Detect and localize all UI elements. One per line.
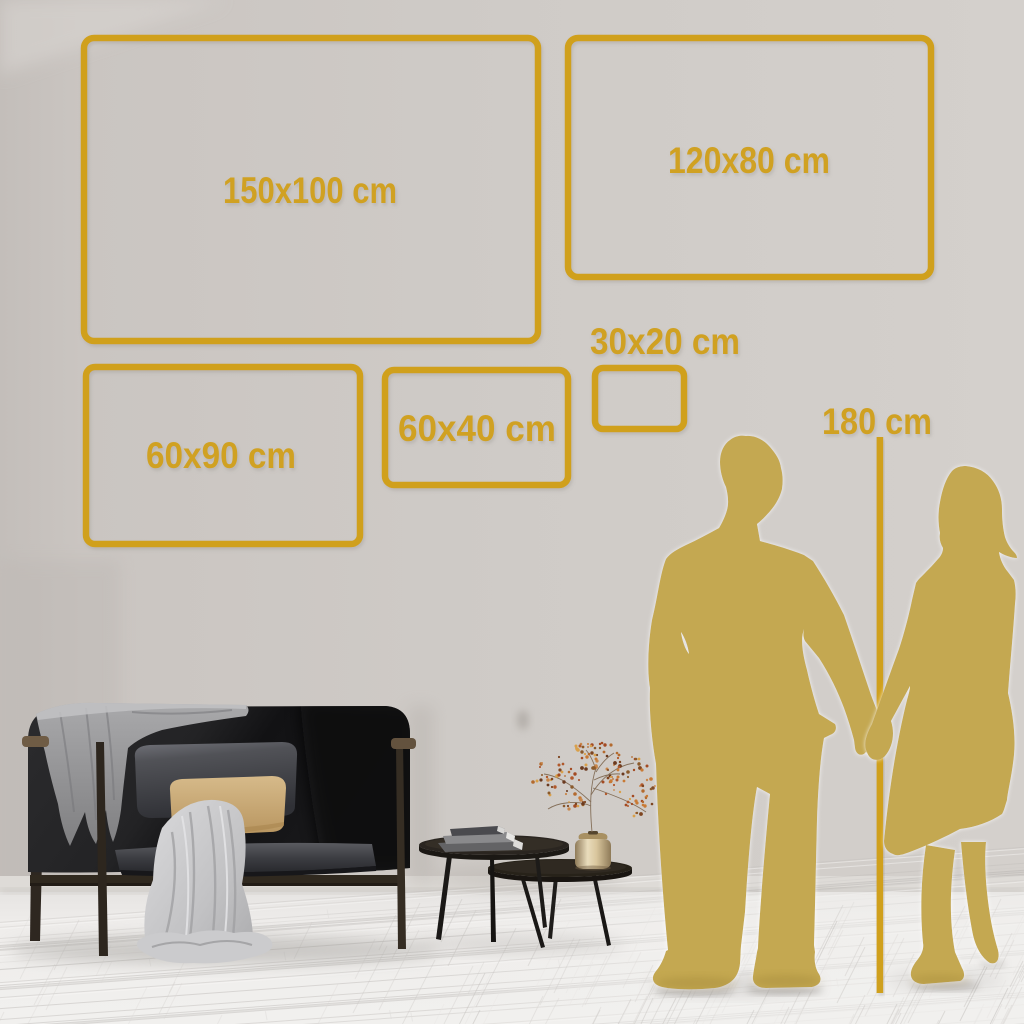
svg-text:60x90 cm: 60x90 cm <box>146 435 296 476</box>
svg-text:120x80 cm: 120x80 cm <box>668 140 830 181</box>
svg-text:180 cm: 180 cm <box>822 401 932 442</box>
svg-text:30x20 cm: 30x20 cm <box>590 321 740 362</box>
svg-text:60x40 cm: 60x40 cm <box>398 408 556 449</box>
svg-text:150x100 cm: 150x100 cm <box>223 170 397 211</box>
